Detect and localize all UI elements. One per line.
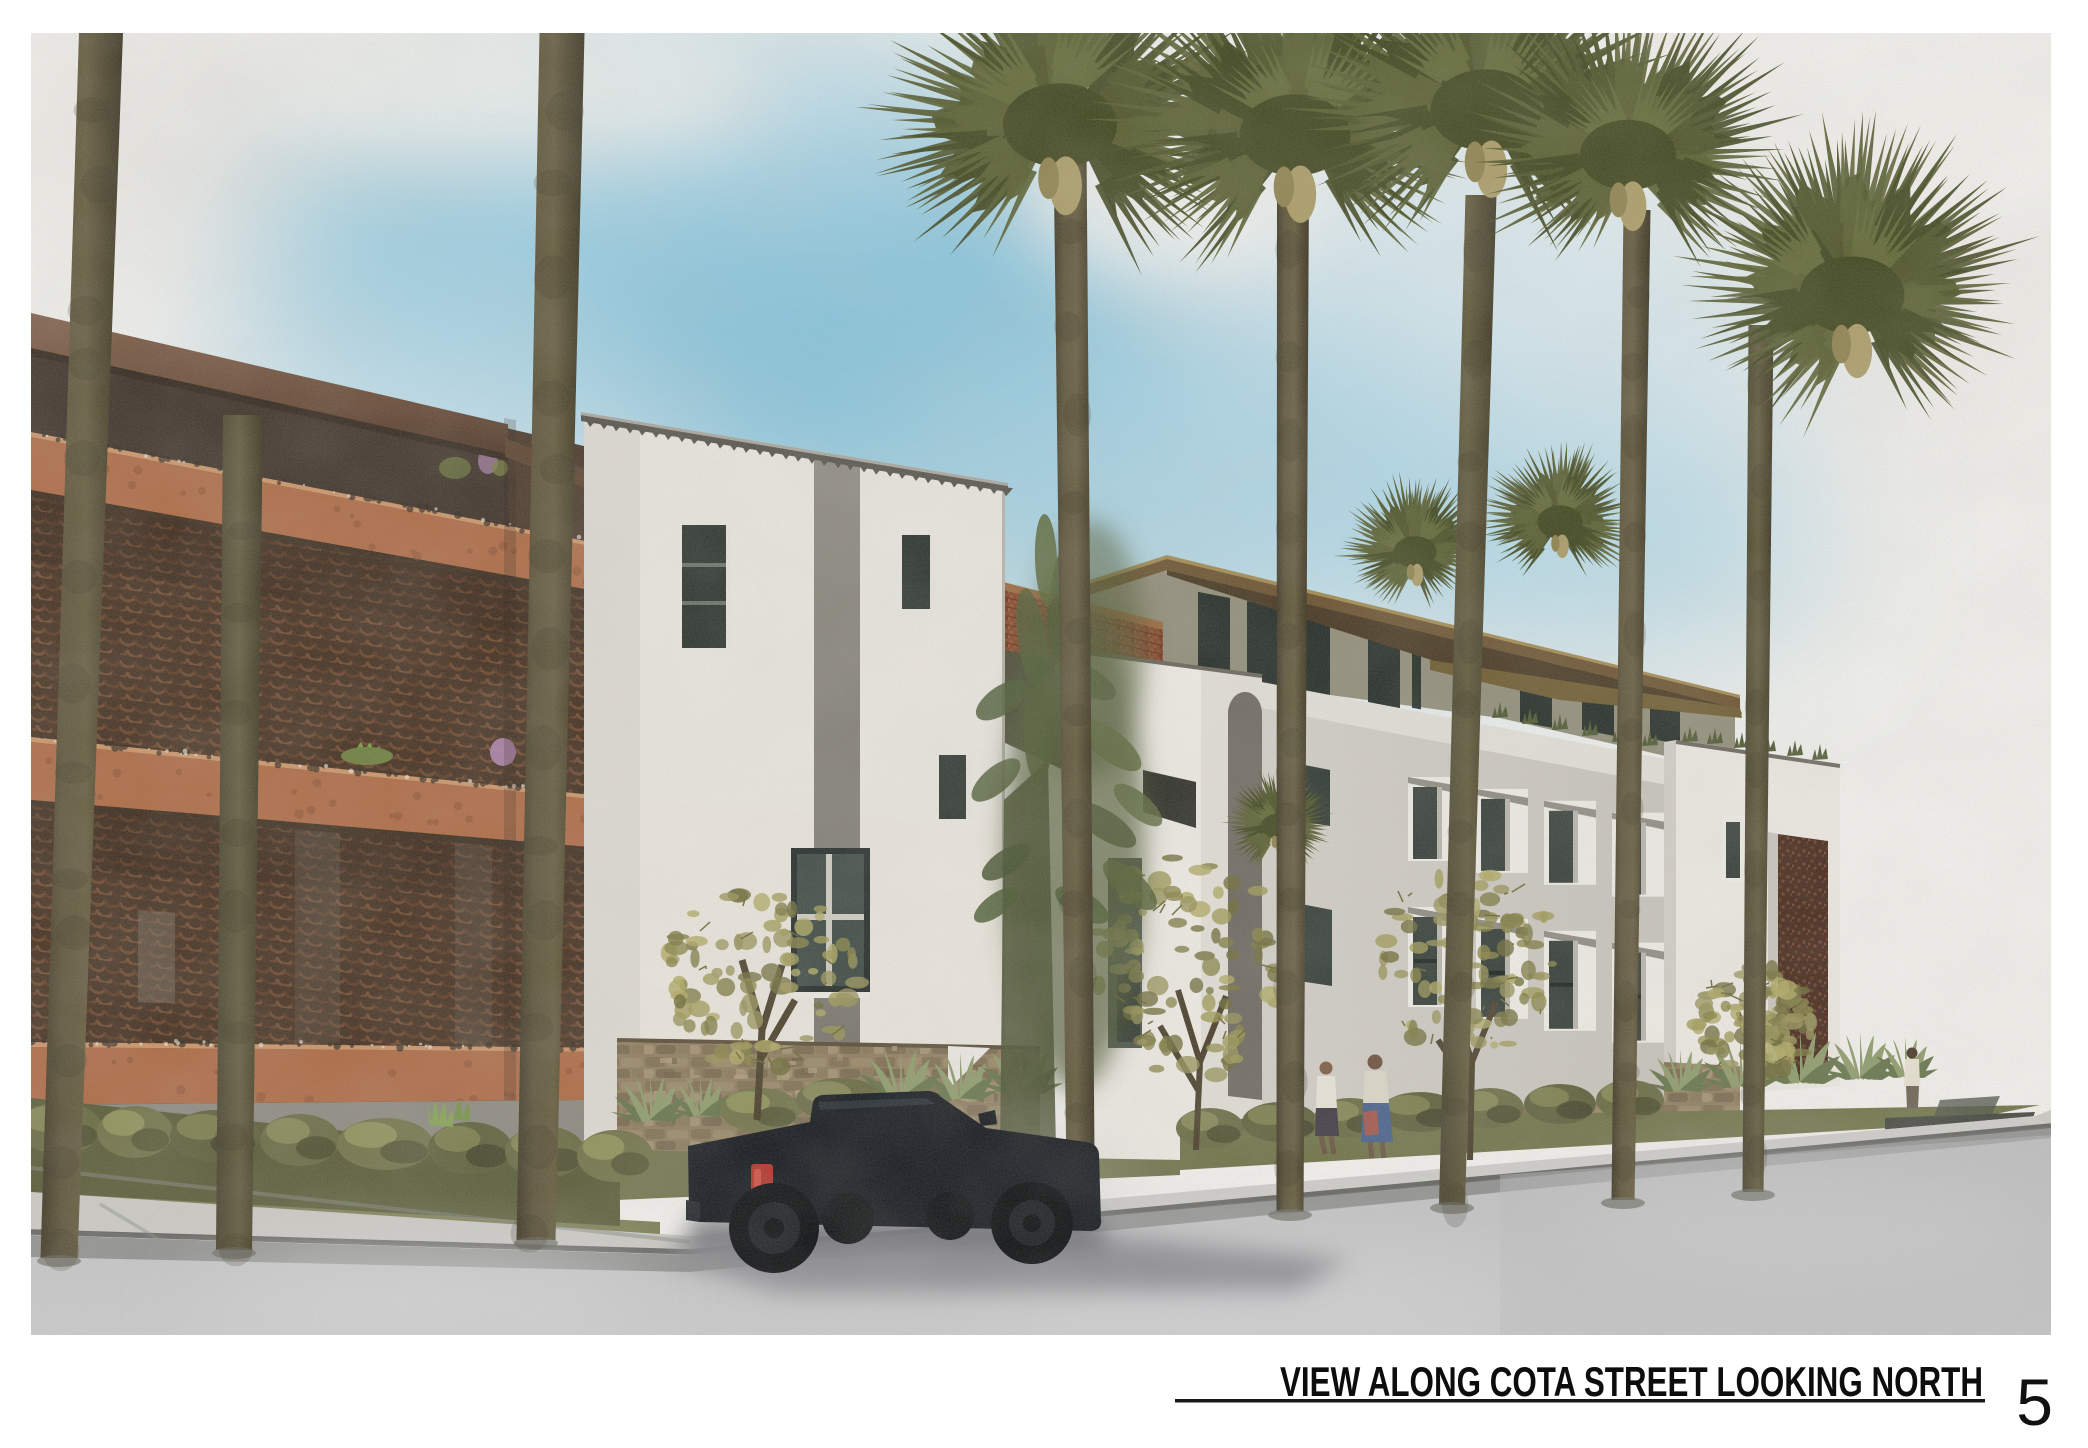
svg-text:VIEW ALONG COTA STREET LOOKING: VIEW ALONG COTA STREET LOOKING NORTH [1280,1358,1983,1405]
svg-text:5: 5 [2016,1365,2053,1439]
